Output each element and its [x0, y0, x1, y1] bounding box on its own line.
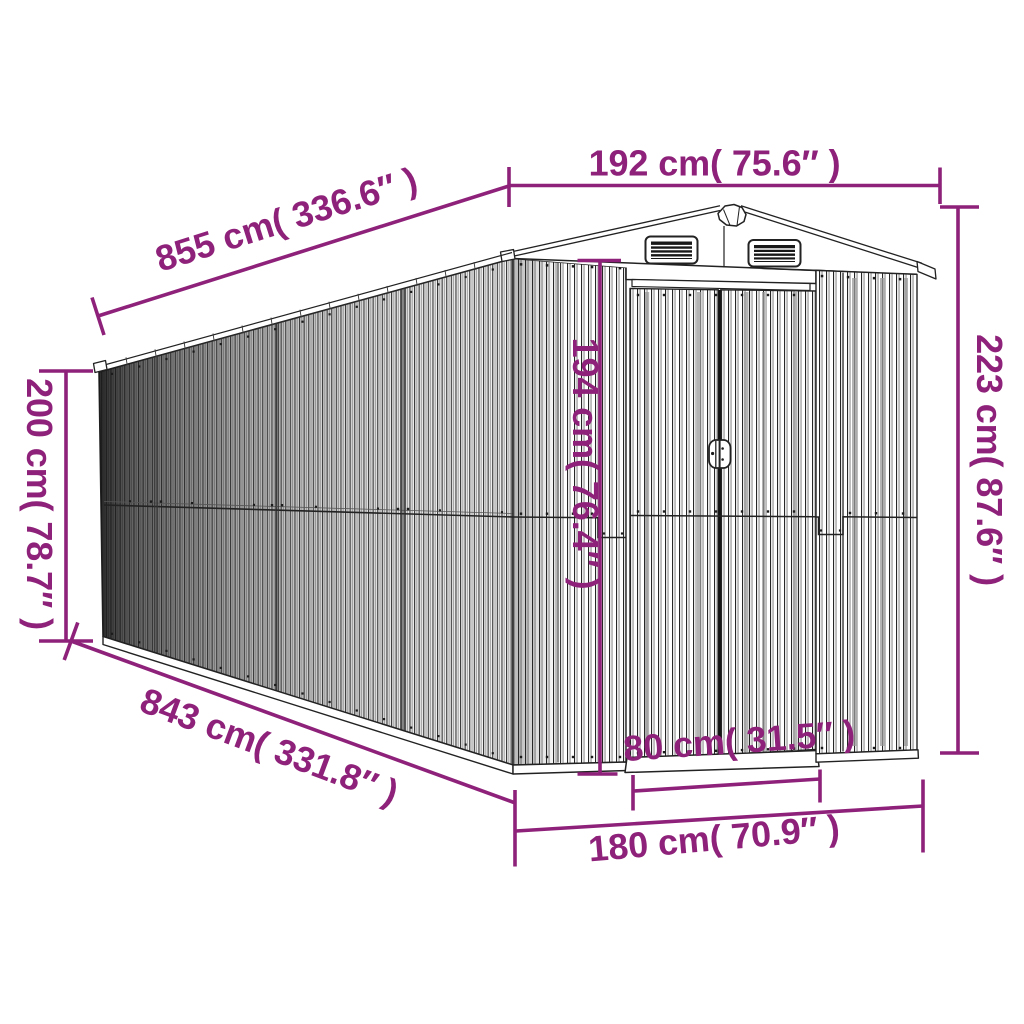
svg-text:192 cm( 75.6″ ): 192 cm( 75.6″ )	[589, 143, 841, 184]
svg-text:200 cm( 78.7″ ): 200 cm( 78.7″ )	[19, 378, 60, 630]
svg-text:194 cm( 76.4″ ): 194 cm( 76.4″ )	[565, 338, 606, 590]
svg-text:223 cm( 87.6″ ): 223 cm( 87.6″ )	[969, 334, 1010, 586]
